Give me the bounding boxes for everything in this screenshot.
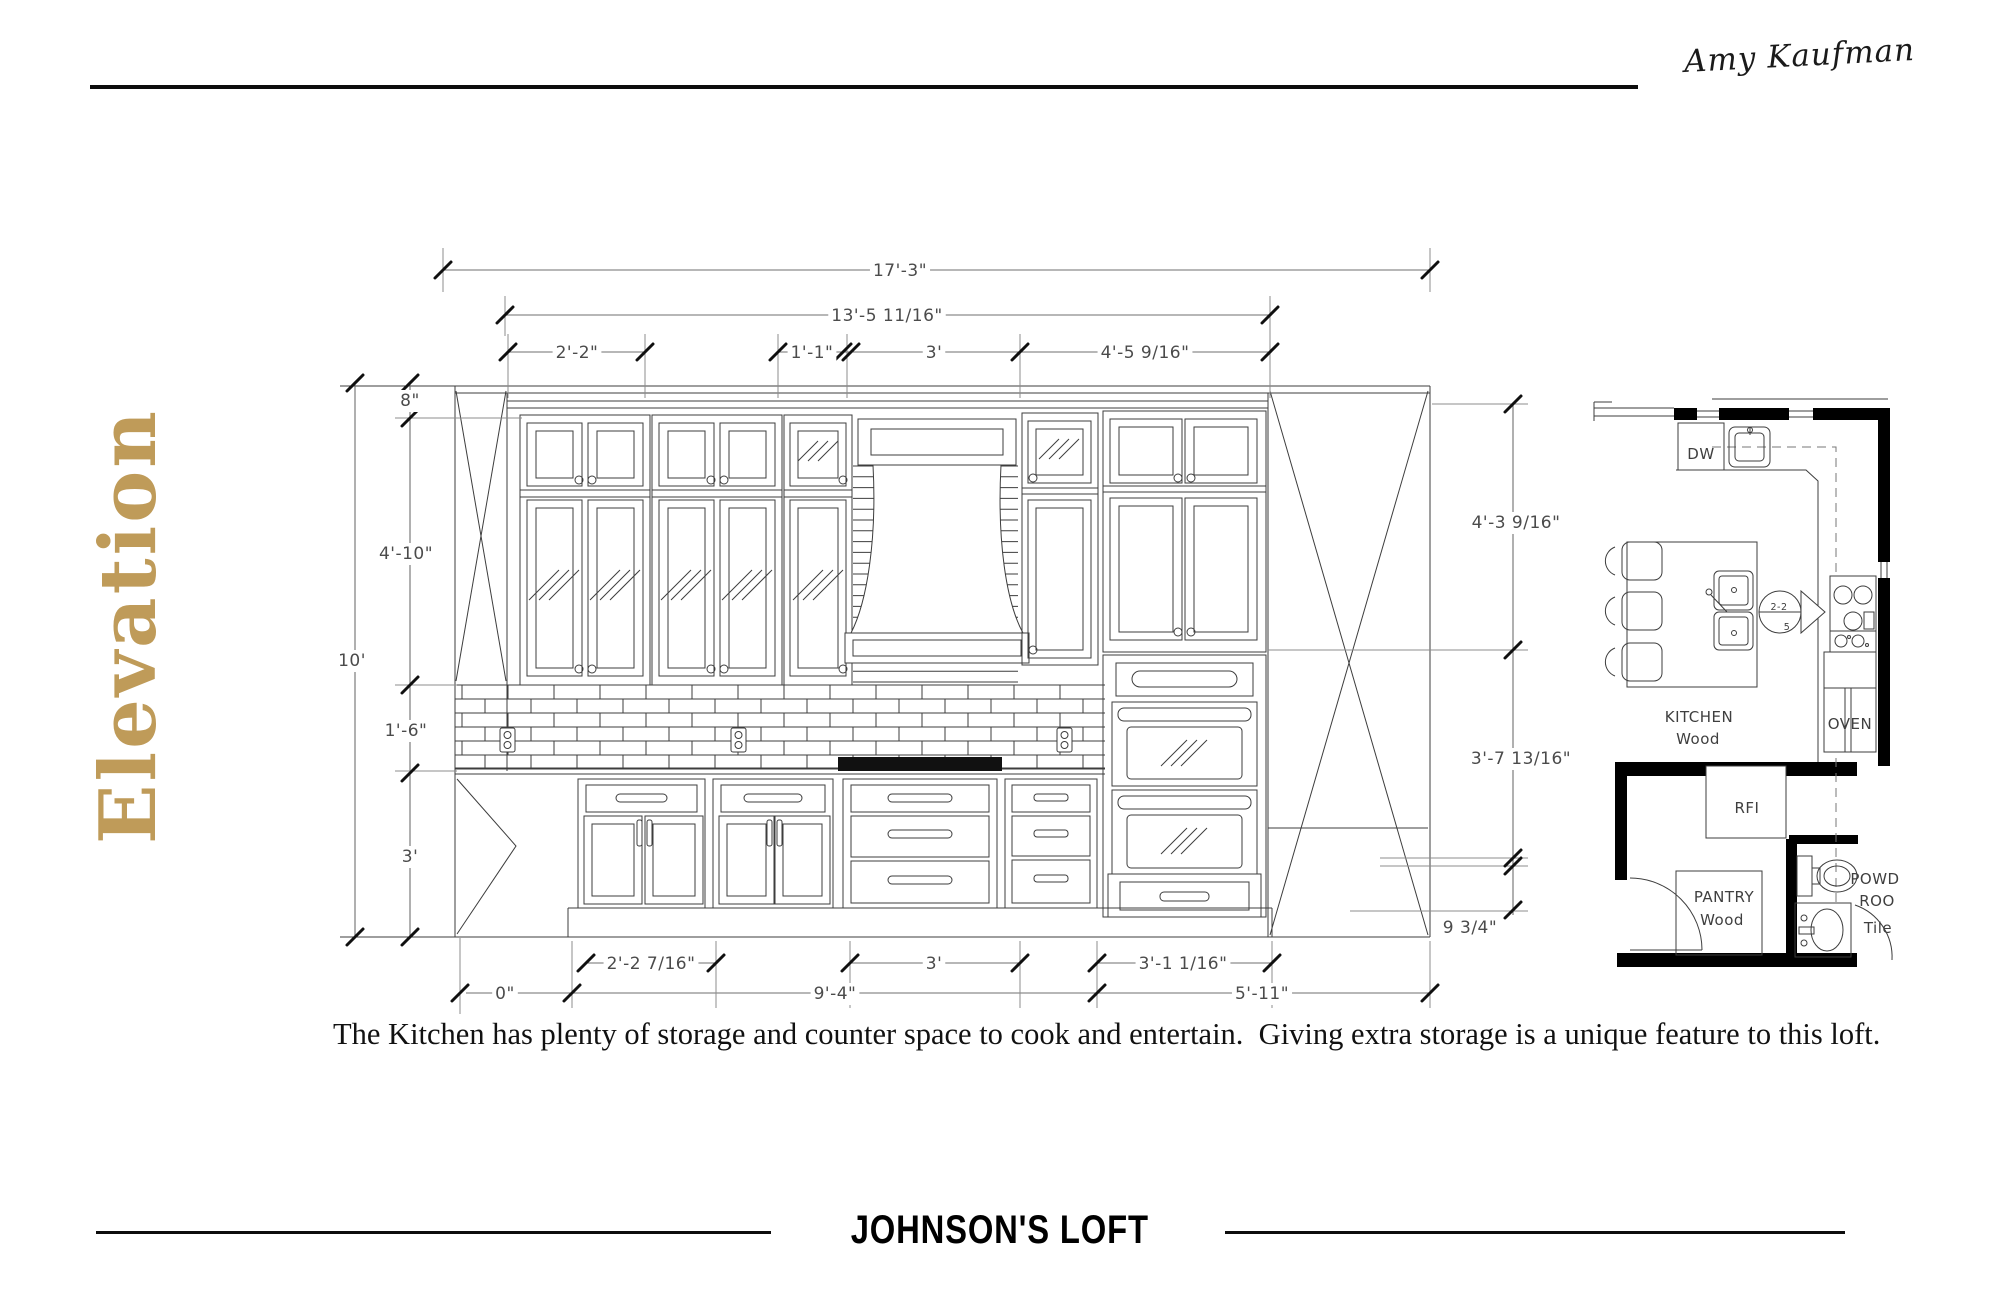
range-hood: [845, 419, 1029, 663]
wall-outlets: [500, 728, 1072, 752]
marker-ref: 2-2: [1770, 602, 1787, 613]
countertop: [455, 757, 1105, 774]
footer-rule-right: [1225, 1231, 1845, 1234]
dim-right-b: 3'-7 13/16": [1471, 749, 1571, 769]
label-powder-2: ROO: [1859, 892, 1895, 910]
footer-rule-left: [96, 1231, 771, 1234]
dim-bot-a: 2'-2 7/16": [607, 954, 696, 974]
dim-left-soffit: 8": [400, 391, 420, 411]
description-text: The Kitchen has plenty of storage and co…: [333, 1014, 1885, 1055]
cooktop: [838, 757, 1002, 771]
floor-plan: 2-2 5: [1594, 399, 1900, 967]
label-dw: DW: [1687, 445, 1714, 463]
dim-cabinet-width: 13'-5 11/16": [831, 306, 942, 326]
pantry-door: [1630, 878, 1702, 950]
dim-bot-d: 9'-4": [814, 984, 857, 1004]
dim-bot-c: 3'-1 1/16": [1139, 954, 1228, 974]
dim-seg-c: 3': [926, 343, 943, 363]
drawing-canvas: 17'-3" 13'-5 11/16" 2'-2" 1'-1" 3' 4'-5 …: [0, 0, 2000, 1294]
dim-left-base: 3': [402, 847, 419, 867]
dim-left-upper: 4'-10": [379, 544, 433, 564]
label-pantry: PANTRY: [1694, 888, 1755, 906]
toilet: [1797, 856, 1857, 896]
counter-gap: [1824, 652, 1876, 688]
island: [1627, 542, 1757, 687]
upper-cabinets: [520, 415, 852, 685]
cooktop-plan: [1830, 576, 1876, 652]
marker-num: 5: [1784, 622, 1791, 633]
backsplash-tiles: [455, 685, 1105, 768]
double-oven-stack: [1103, 655, 1266, 917]
dim-right-a: 4'-3 9/16": [1472, 513, 1561, 533]
dim-seg-d: 4'-5 9/16": [1101, 343, 1190, 363]
dim-bot-e: 5'-11": [1235, 984, 1289, 1004]
island-sink: [1706, 571, 1753, 650]
elevation-drawing: [340, 386, 1430, 937]
project-title-text: JOHNSON'S LOFT: [851, 1208, 1149, 1253]
dim-bot-b: 3': [926, 954, 943, 974]
dim-zero: 0": [495, 984, 515, 1004]
label-powder-floor: Tile: [1863, 919, 1892, 937]
right-end-panel: [1268, 391, 1428, 935]
dim-right-c: 9 3/4": [1443, 918, 1497, 938]
label-pantry-floor: Wood: [1700, 911, 1744, 929]
label-oven: OVEN: [1828, 715, 1873, 733]
base-cabinets: [578, 779, 1097, 908]
label-fridge: RFI: [1735, 799, 1760, 817]
dim-left-backsplash: 1'-6": [385, 721, 428, 741]
plan-fixtures: 2-2 5: [1605, 423, 1892, 960]
dim-seg-b: 1'-1": [791, 343, 834, 363]
label-powder-1: POWD: [1850, 870, 1899, 888]
dim-seg-a: 2'-2": [556, 343, 599, 363]
dim-total-width: 17'-3": [873, 261, 927, 281]
dim-left-total: 10': [338, 651, 366, 671]
powder-sink: [1795, 903, 1851, 957]
label-kitchen: KITCHEN: [1665, 708, 1734, 726]
bar-stools: [1605, 542, 1662, 681]
label-kitchen-floor: Wood: [1676, 730, 1720, 748]
elevation-marker: 2-2 5: [1759, 591, 1825, 633]
project-title: JOHNSON'S LOFT: [700, 1208, 1300, 1253]
